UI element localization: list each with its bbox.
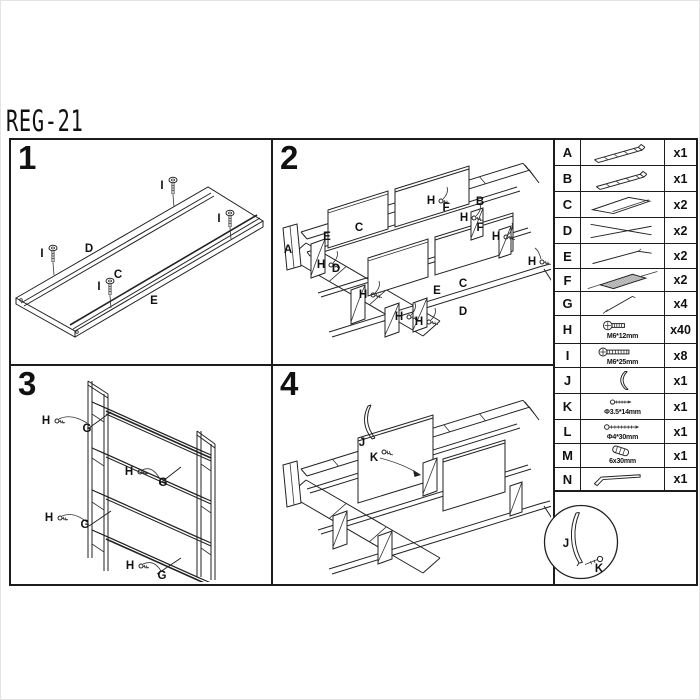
bolt-icon: M6*12mm <box>581 316 665 343</box>
step-number: 4 <box>280 367 298 402</box>
screw-label: I <box>97 281 100 293</box>
screw-small-icon: Φ3.5*14mm <box>581 394 665 419</box>
step-3-panel: H G H G H G H G 3 <box>11 366 273 584</box>
part-label-c: C <box>114 269 122 281</box>
part-row-f: F x2 <box>555 269 696 292</box>
part-label: G <box>83 423 92 435</box>
part-label: H <box>125 466 133 478</box>
part-row-g: G x4 <box>555 292 696 316</box>
part-qty: x40 <box>665 316 696 343</box>
screw-label: I <box>40 248 43 260</box>
part-id: C <box>555 192 581 217</box>
part-label-e: E <box>150 295 158 307</box>
part-row-i: I M6*25mm x8 <box>555 344 696 368</box>
part-label: B <box>476 196 484 208</box>
part-label: H <box>42 415 50 427</box>
part-qty: x1 <box>665 368 696 393</box>
part-label: G <box>159 477 168 489</box>
part-label: C <box>355 222 363 234</box>
part-label: E <box>433 285 441 297</box>
rail-icon <box>581 244 665 268</box>
part-label: F <box>476 222 483 234</box>
screw-label: I <box>217 213 220 225</box>
part-row-m: M 6x30mm x1 <box>555 444 696 468</box>
step4-drawing: J K <box>273 366 551 582</box>
part-qty: x1 <box>665 140 696 165</box>
part-id: D <box>555 218 581 243</box>
model-title: REG-21 <box>6 104 84 138</box>
part-id: G <box>555 292 581 315</box>
part-label-k: K <box>370 452 379 464</box>
part-qty: x4 <box>665 292 696 315</box>
part-label: H <box>415 316 423 328</box>
step2-drawing: A E C H D H H H E C D B H F H F H H <box>273 140 551 362</box>
detail-label-k: K <box>595 563 604 575</box>
step-2-panel: A E C H D H H H E C D B H F H F H H 2 <box>273 140 555 366</box>
rail-pair-icon <box>581 218 665 243</box>
support-rod-icon <box>581 292 665 315</box>
part-row-d: D x2 <box>555 218 696 244</box>
part-spec: M6*12mm <box>607 333 638 340</box>
part-row-n: N x1 <box>555 468 696 492</box>
step-number: 3 <box>18 367 36 402</box>
part-label: D <box>332 263 340 275</box>
part-spec: M6*25mm <box>607 359 638 366</box>
part-label: H <box>126 560 134 572</box>
part-qty: x2 <box>665 244 696 268</box>
step3-drawing: H G H G H G H G <box>11 366 269 582</box>
part-id: N <box>555 468 581 490</box>
part-label-d: D <box>85 243 93 255</box>
part-label: H <box>317 259 325 271</box>
part-label: G <box>81 519 90 531</box>
part-id: L <box>555 420 581 443</box>
ladder-frame-icon <box>581 166 665 191</box>
detail-view: J K <box>541 502 621 582</box>
part-row-k: K Φ3.5*14mm x1 <box>555 394 696 420</box>
part-label: A <box>284 244 292 256</box>
part-label: H <box>492 231 500 243</box>
instruction-sheet: REG-21 <box>0 0 700 700</box>
part-qty: x2 <box>665 192 696 217</box>
part-id: E <box>555 244 581 268</box>
part-row-b: B x1 <box>555 166 696 192</box>
shelf-panel-icon <box>581 192 665 217</box>
part-row-c: C x2 <box>555 192 696 218</box>
curved-bracket-icon <box>581 368 665 393</box>
dowel-icon: 6x30mm <box>581 444 665 467</box>
allen-key-icon <box>581 468 665 490</box>
diagram-grid: I I I I D C E 1 <box>9 138 698 586</box>
part-qty: x2 <box>665 269 696 291</box>
step-1-panel: I I I I D C E 1 <box>11 140 273 366</box>
part-id: I <box>555 344 581 367</box>
part-id: F <box>555 269 581 291</box>
part-qty: x1 <box>665 394 696 419</box>
part-label: H <box>427 195 435 207</box>
step-4-panel: J K 4 <box>273 366 555 584</box>
part-label-j: J <box>359 437 365 449</box>
step-number: 1 <box>18 141 36 176</box>
parts-list: A x1 B x1 C x2 D <box>555 140 696 492</box>
part-spec: Φ3.5*14mm <box>604 409 641 416</box>
part-spec: 6x30mm <box>609 458 636 465</box>
part-row-a: A x1 <box>555 140 696 166</box>
part-label: F <box>442 202 449 214</box>
part-label: H <box>359 289 367 301</box>
step1-drawing: I I I I D C E <box>11 140 269 362</box>
part-id: A <box>555 140 581 165</box>
mesh-shelf-icon <box>581 269 665 291</box>
ladder-frame-icon <box>581 140 665 165</box>
part-id: J <box>555 368 581 393</box>
part-qty: x1 <box>665 468 696 490</box>
part-spec: Φ4*30mm <box>607 434 638 441</box>
part-label: E <box>323 231 331 243</box>
part-id: B <box>555 166 581 191</box>
part-label: H <box>395 311 403 323</box>
detail-drawing: J K <box>541 502 621 582</box>
bolt-long-icon: M6*25mm <box>581 344 665 367</box>
part-label: H <box>528 256 536 268</box>
part-label: C <box>459 278 467 290</box>
part-label: D <box>459 306 467 318</box>
part-id: M <box>555 444 581 467</box>
screw-label: I <box>160 180 163 192</box>
part-qty: x1 <box>665 444 696 467</box>
part-qty: x1 <box>665 166 696 191</box>
part-row-l: L Φ4*30mm x1 <box>555 420 696 444</box>
screw-long-icon: Φ4*30mm <box>581 420 665 443</box>
detail-label-j: J <box>563 538 569 550</box>
part-label: G <box>158 570 167 582</box>
part-row-j: J x1 <box>555 368 696 394</box>
part-qty: x2 <box>665 218 696 243</box>
part-qty: x1 <box>665 420 696 443</box>
step-number: 2 <box>280 141 298 176</box>
part-row-h: H M6*12mm x40 <box>555 316 696 344</box>
part-id: H <box>555 316 581 343</box>
part-qty: x8 <box>665 344 696 367</box>
part-row-e: E x2 <box>555 244 696 269</box>
part-id: K <box>555 394 581 419</box>
part-label: H <box>45 512 53 524</box>
part-label: H <box>460 212 468 224</box>
